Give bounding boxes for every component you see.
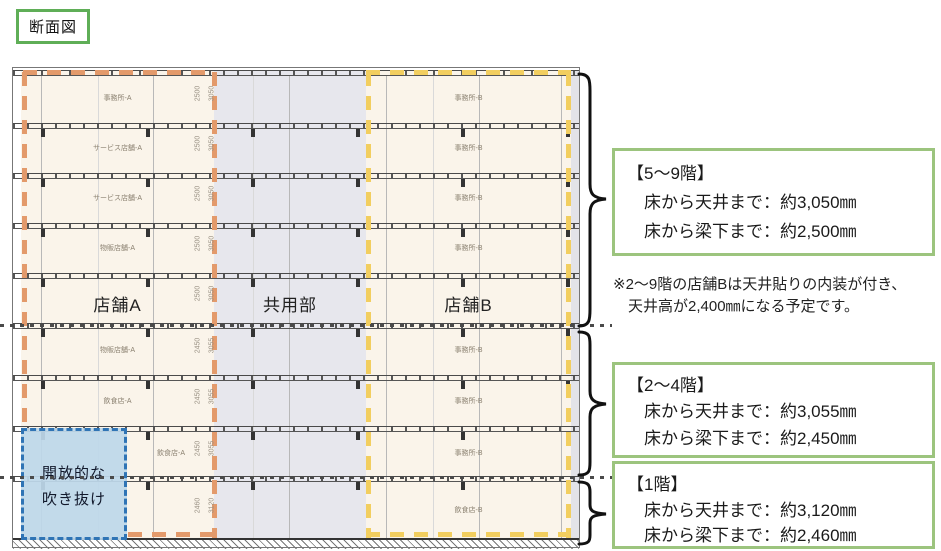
brace-2-4f xyxy=(576,329,610,479)
annotation-line: 床から天井まで：約3,055㎜ xyxy=(627,399,920,425)
brace-1f xyxy=(576,480,610,548)
common-area-label: 共用部 xyxy=(214,291,366,316)
dim-label: 3055 xyxy=(209,331,216,361)
dim-label: 2500 xyxy=(195,229,202,259)
dim-label: 2460 xyxy=(195,491,202,521)
zone-separator-lower xyxy=(0,476,612,479)
room-label-b7: 事務所-B xyxy=(366,193,571,203)
room-label-b9: 事務所-B xyxy=(366,93,571,103)
note-text: ※2〜9階の店舗Bは天井貼りの内装が付き、 天井高が2,400㎜になる予定です。 xyxy=(613,274,939,318)
dim-label: 2450 xyxy=(195,331,202,361)
room-label-b2: 事務所-B xyxy=(366,448,571,458)
dim-label: 3050 xyxy=(209,229,216,259)
room-label-a4: 物販店舗-A xyxy=(21,345,214,355)
dim-label: 3055 xyxy=(209,382,216,412)
room-label-b3: 事務所-B xyxy=(366,396,571,406)
brace-5-9f xyxy=(576,71,610,329)
floor-beams xyxy=(15,329,577,337)
room-label-b8: 事務所-B xyxy=(366,143,571,153)
dim-label: 2500 xyxy=(195,129,202,159)
room-label-b4: 事務所-B xyxy=(366,345,571,355)
annotation-heading: 【5〜9階】 xyxy=(627,159,920,188)
store-b-label: 店舗B xyxy=(366,291,571,316)
floor-beams xyxy=(15,229,577,237)
dim-label: 3055 xyxy=(209,434,216,464)
store-b-outline-bottom xyxy=(366,532,571,537)
annotation-line: 床から梁下まで：約2,450㎜ xyxy=(627,426,920,452)
room-label-a3: 飲食店-A xyxy=(21,396,214,406)
annotation-box-1f: 【1階】 床から天井まで：約3,120㎜ 床から梁下まで：約2,460㎜ xyxy=(612,461,935,549)
store-a-label: 店舗A xyxy=(21,291,214,316)
floor-beams xyxy=(15,279,577,287)
dim-label: 2450 xyxy=(195,382,202,412)
annotation-line: 床から梁下まで：約2,460㎜ xyxy=(627,523,920,549)
floor-beams xyxy=(15,179,577,187)
room-label-a9: 事務所-A xyxy=(21,93,214,103)
dim-label: 3050 xyxy=(209,79,216,109)
annotation-heading: 【2〜4階】 xyxy=(627,373,920,399)
annotation-box-5-9f: 【5〜9階】 床から天井まで：約3,050㎜ 床から梁下まで：約2,500㎜ xyxy=(612,148,935,256)
atrium-box: 開放的な 吹き抜け xyxy=(21,428,127,540)
annotation-line: 床から天井まで：約3,120㎜ xyxy=(627,498,920,524)
store-b-outline-top xyxy=(366,70,571,75)
annotation-heading: 【1階】 xyxy=(627,472,920,498)
room-label-b1: 飲食店-B xyxy=(366,505,571,515)
dim-label: 3120 xyxy=(209,491,216,521)
page: 断面図 xyxy=(0,0,941,551)
atrium-label: 開放的な 吹き抜け xyxy=(24,461,124,512)
room-label-b6: 事務所-B xyxy=(366,243,571,253)
dim-label: 2500 xyxy=(195,79,202,109)
zone-separator-upper xyxy=(0,324,612,327)
dim-label: 3050 xyxy=(209,179,216,209)
dim-label: 2450 xyxy=(195,434,202,464)
annotation-line: 床から梁下まで：約2,500㎜ xyxy=(627,217,920,246)
page-title: 断面図 xyxy=(16,9,90,44)
store-a-outline-top xyxy=(23,70,214,75)
dim-label: 2500 xyxy=(195,179,202,209)
annotation-line: 床から天井まで：約3,050㎜ xyxy=(627,188,920,217)
room-label-a6: 物販店舗-A xyxy=(21,243,214,253)
dim-label: 3050 xyxy=(209,129,216,159)
floor-beams xyxy=(15,129,577,137)
room-label-a7: サービス店舗-A xyxy=(21,193,214,203)
floor-beams xyxy=(15,381,577,389)
annotation-box-2-4f: 【2〜4階】 床から天井まで：約3,055㎜ 床から梁下まで：約2,450㎜ xyxy=(612,362,935,458)
store-a-outline-bottom xyxy=(128,532,214,537)
room-label-a8: サービス店舗-A xyxy=(21,143,214,153)
